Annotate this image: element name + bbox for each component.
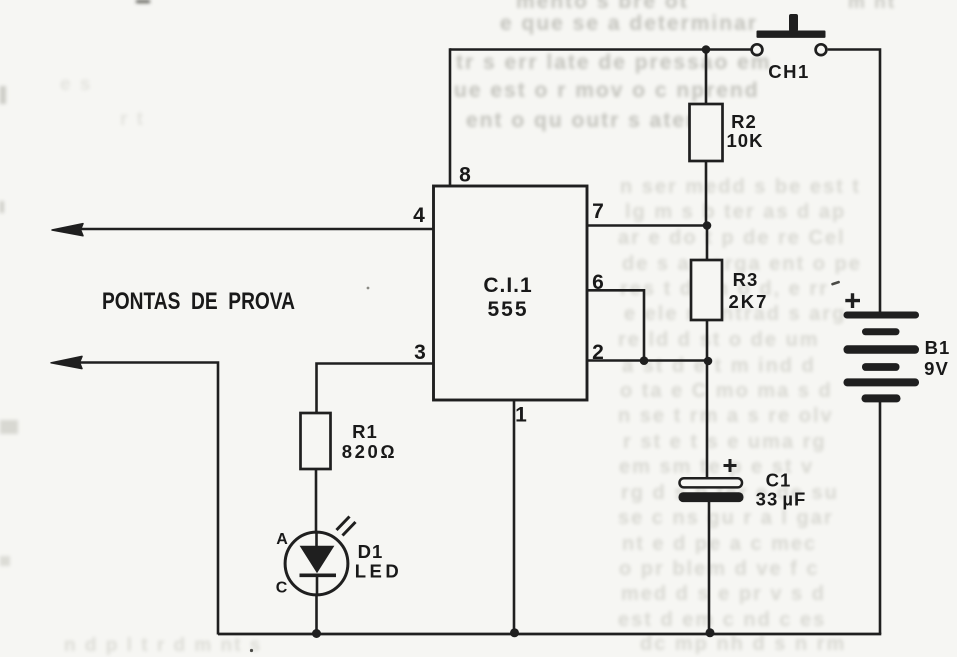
svg-text:o pr blem d ve f c: o pr blem d ve f c bbox=[619, 558, 819, 580]
svg-text:8: 8 bbox=[459, 164, 471, 187]
svg-text:2: 2 bbox=[592, 341, 604, 364]
svg-text:r st e t s e uma rg: r st e t s e uma rg bbox=[623, 431, 827, 453]
svg-text:n se t rm a s re olv: n se t rm a s re olv bbox=[618, 405, 834, 427]
svg-text:dc mp nh d s n rm: dc mp nh d s n rm bbox=[640, 633, 846, 655]
svg-text:e s: e s bbox=[60, 74, 92, 95]
svg-text:2K7: 2K7 bbox=[729, 291, 769, 312]
svg-text:m nt: m nt bbox=[848, 0, 896, 13]
svg-text:1: 1 bbox=[515, 404, 527, 427]
svg-text:R2: R2 bbox=[731, 111, 757, 132]
svg-text:3: 3 bbox=[414, 341, 426, 364]
svg-text:CH1: CH1 bbox=[768, 61, 810, 82]
svg-text:R1: R1 bbox=[352, 421, 378, 442]
svg-text:tr s err late de pressao em: tr s err late de pressao em bbox=[456, 51, 771, 74]
svg-text:r t: r t bbox=[120, 109, 145, 130]
svg-text:820Ω: 820Ω bbox=[342, 441, 397, 462]
svg-text:10K: 10K bbox=[727, 130, 764, 151]
svg-text:555: 555 bbox=[487, 298, 528, 321]
svg-text:C.I.1: C.I.1 bbox=[483, 274, 532, 297]
svg-text:A: A bbox=[276, 531, 288, 548]
svg-text:LED: LED bbox=[355, 561, 403, 582]
svg-text:est d em c nd c es: est d em c nd c es bbox=[618, 609, 826, 631]
svg-text:B1: B1 bbox=[925, 337, 951, 358]
svg-text:R3: R3 bbox=[733, 269, 759, 290]
svg-text:7: 7 bbox=[592, 200, 604, 223]
svg-text:D1: D1 bbox=[358, 541, 384, 562]
svg-text:o ta e C mo ma s d: o ta e C mo ma s d bbox=[620, 380, 833, 402]
svg-text:ar e do t p de re Cel: ar e do t p de re Cel bbox=[618, 227, 846, 249]
svg-text:med d s e pr v s d: med d s e pr v s d bbox=[621, 583, 826, 605]
svg-text:re ld d st o de um: re ld d st o de um bbox=[618, 329, 820, 351]
svg-text:9V: 9V bbox=[924, 358, 949, 379]
svg-text:n d p l t r d m nt: n d p l t r d m nt s bbox=[64, 635, 262, 656]
svg-text:ent o qu outr s aten: ent o qu outr s aten bbox=[466, 109, 701, 132]
svg-text:se c ns gu r a l gar: se c ns gu r a l gar bbox=[618, 507, 834, 529]
svg-text:C: C bbox=[276, 580, 288, 597]
svg-text:ue est o r mov o c nprend: ue est o r mov o c nprend bbox=[454, 79, 760, 102]
svg-text:nt e d pe a c mec: nt e d pe a c mec bbox=[622, 533, 817, 555]
svg-text:C1: C1 bbox=[766, 470, 792, 491]
svg-text:res t do n o d, e rr: res t do n o d, e rr bbox=[620, 278, 829, 300]
svg-text:4: 4 bbox=[413, 204, 425, 227]
svg-text:6: 6 bbox=[592, 271, 604, 294]
svg-text:lg m s b ter as d ap: lg m s b ter as d ap bbox=[625, 201, 846, 223]
svg-text:PONTAS DE PROVA: PONTAS DE PROVA bbox=[102, 288, 295, 315]
svg-text:a st d e t m ind d: a st d e t m ind d bbox=[622, 355, 816, 377]
svg-text:33 µF: 33 µF bbox=[756, 489, 807, 510]
svg-text:e que se a determinar: e que se a determinar bbox=[500, 12, 758, 35]
svg-text:n ser medd s be est t: n ser medd s be est t bbox=[620, 176, 861, 198]
